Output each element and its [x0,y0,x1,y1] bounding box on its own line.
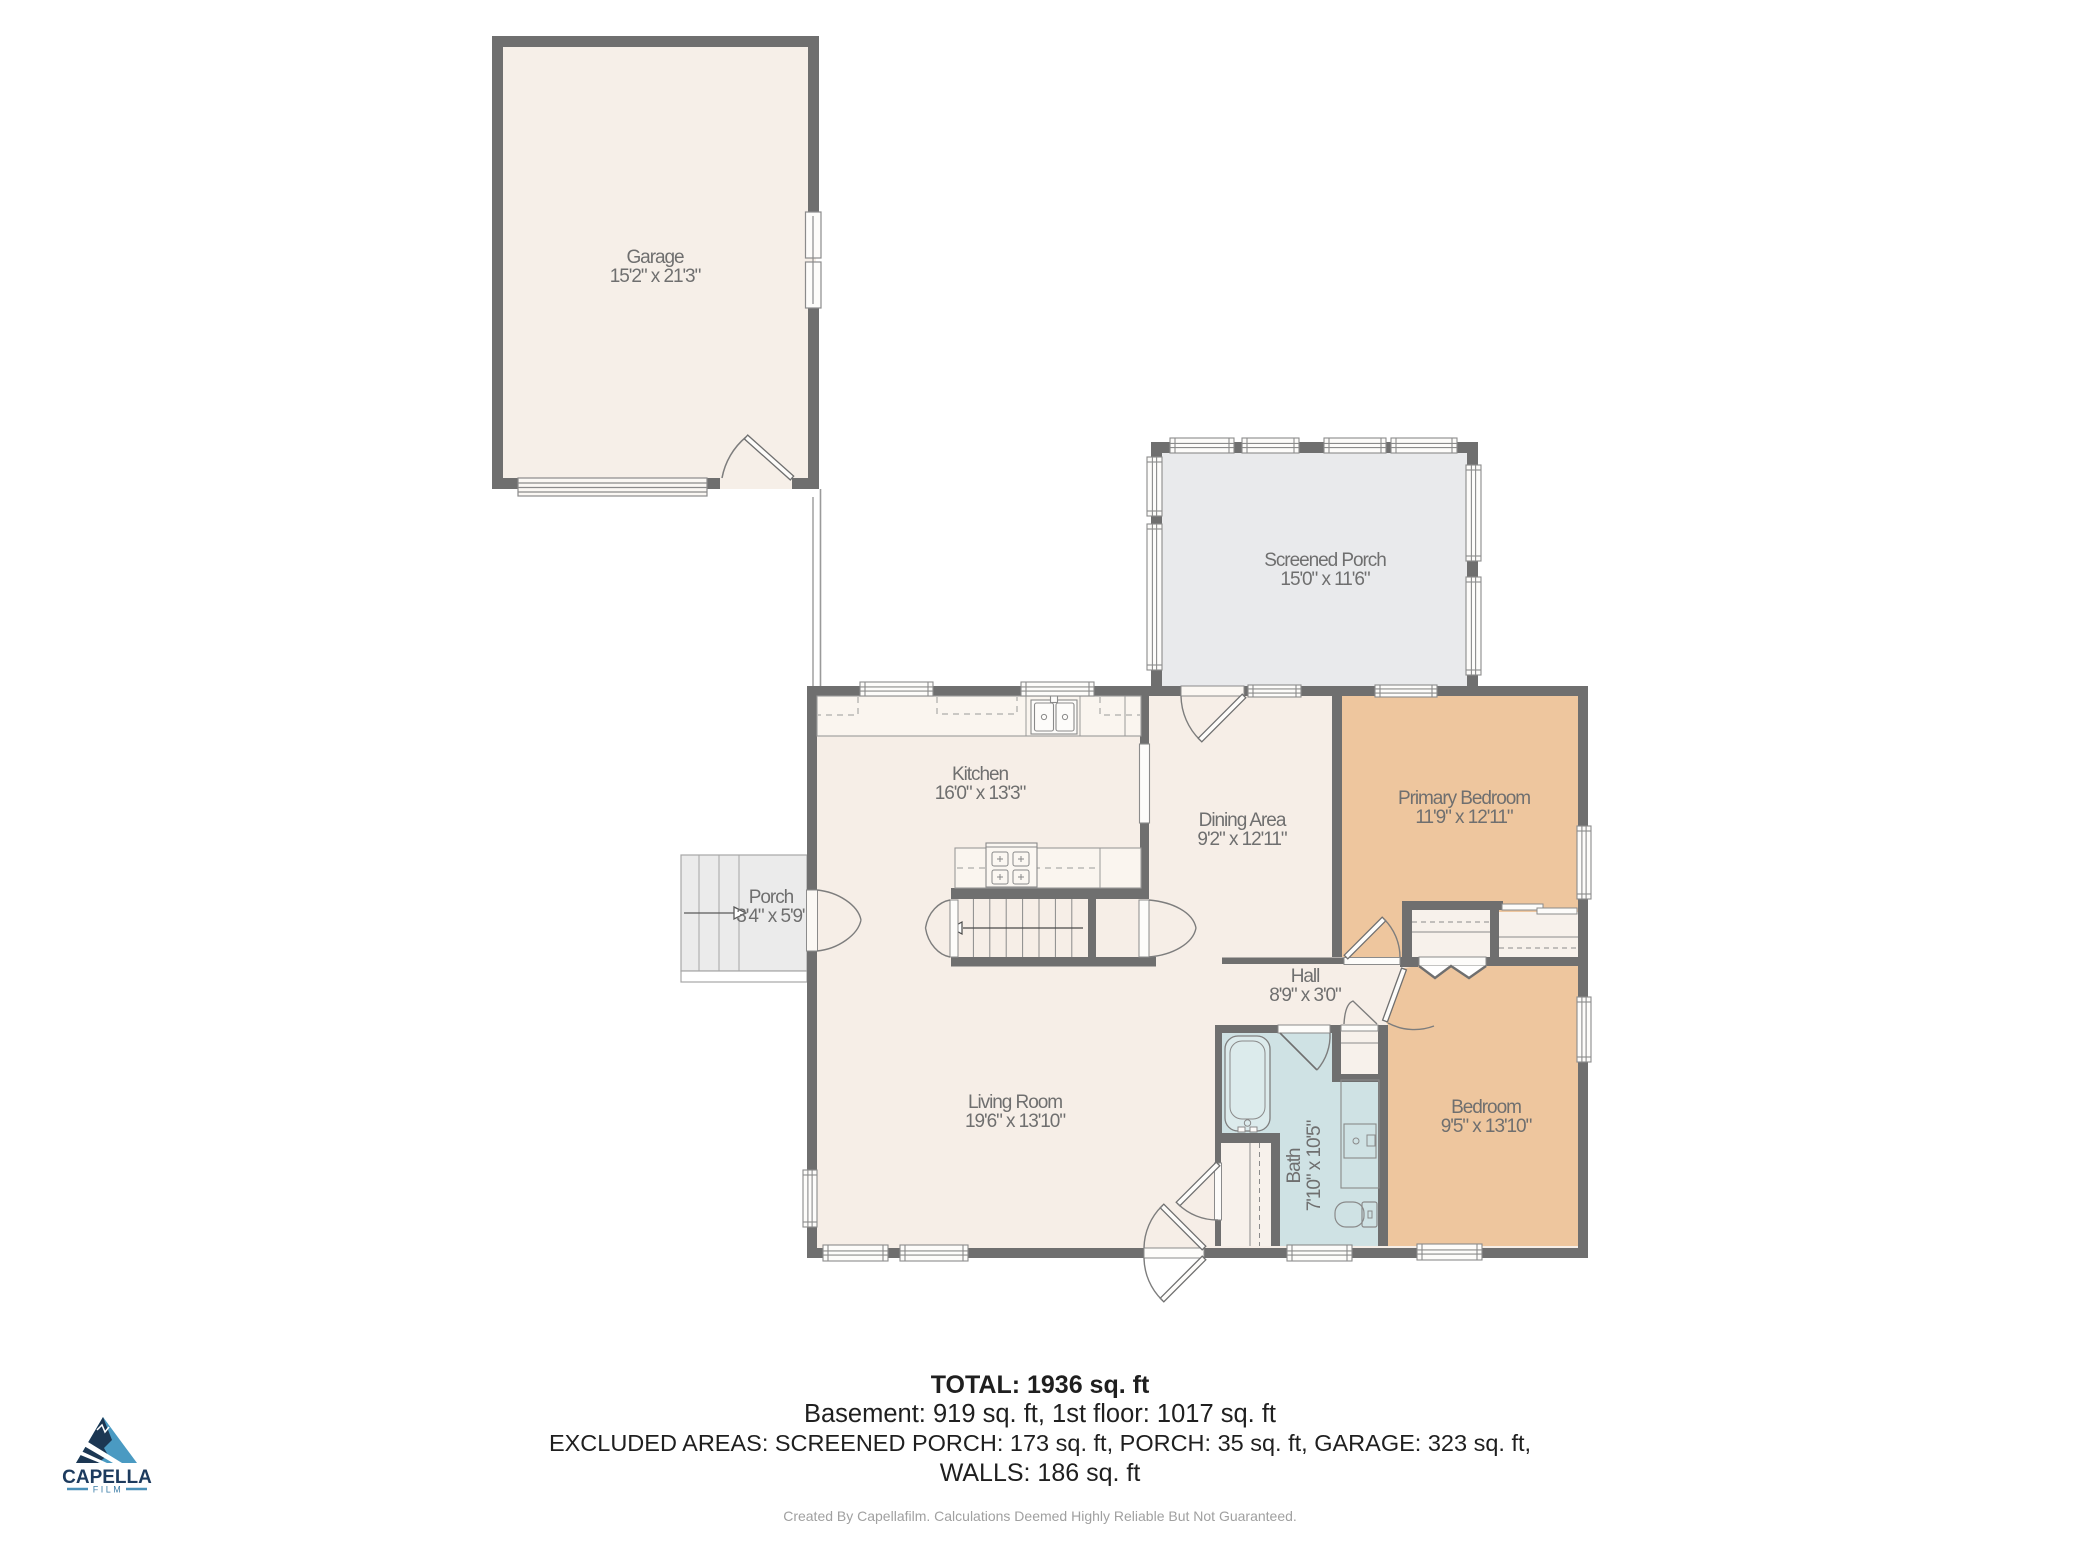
svg-text:Dining Area: Dining Area [1199,810,1287,831]
svg-text:EXCLUDED AREAS: SCREENED PORCH: EXCLUDED AREAS: SCREENED PORCH: 173 sq. … [549,1430,1531,1456]
svg-text:9'2" x 12'11": 9'2" x 12'11" [1197,829,1286,850]
svg-text:16'0" x 13'3": 16'0" x 13'3" [935,783,1026,804]
svg-text:Bedroom: Bedroom [1451,1097,1521,1118]
svg-text:Porch: Porch [749,887,794,908]
svg-text:7'10" x 10'5": 7'10" x 10'5" [1304,1120,1325,1211]
svg-text:3'4" x 5'9": 3'4" x 5'9" [736,906,808,927]
svg-text:Hall: Hall [1291,966,1320,987]
svg-text:Garage: Garage [626,247,684,268]
svg-text:Living Room: Living Room [968,1092,1062,1113]
svg-text:Screened Porch: Screened Porch [1264,550,1386,571]
svg-text:Kitchen: Kitchen [952,764,1009,785]
svg-text:15'0" x 11'6": 15'0" x 11'6" [1280,569,1369,590]
svg-text:11'9" x 12'11": 11'9" x 12'11" [1415,807,1513,828]
svg-text:TOTAL: 1936 sq. ft: TOTAL: 1936 sq. ft [931,1371,1150,1399]
svg-text:9'5" x 13'10": 9'5" x 13'10" [1441,1116,1532,1137]
svg-text:15'2" x 21'3": 15'2" x 21'3" [610,266,701,287]
svg-text:FILM: FILM [93,1485,124,1495]
svg-text:WALLS: 186 sq. ft: WALLS: 186 sq. ft [940,1459,1141,1487]
svg-text:Basement: 919 sq. ft, 1st floo: Basement: 919 sq. ft, 1st floor: 1017 sq… [804,1400,1276,1428]
svg-text:Created By Capellafilm. Calcul: Created By Capellafilm. Calculations Dee… [783,1508,1297,1524]
svg-text:19'6" x 13'10": 19'6" x 13'10" [965,1111,1065,1132]
svg-text:Bath: Bath [1284,1148,1305,1183]
svg-text:Primary Bedroom: Primary Bedroom [1398,788,1530,809]
svg-text:8'9" x 3'0": 8'9" x 3'0" [1269,985,1341,1006]
